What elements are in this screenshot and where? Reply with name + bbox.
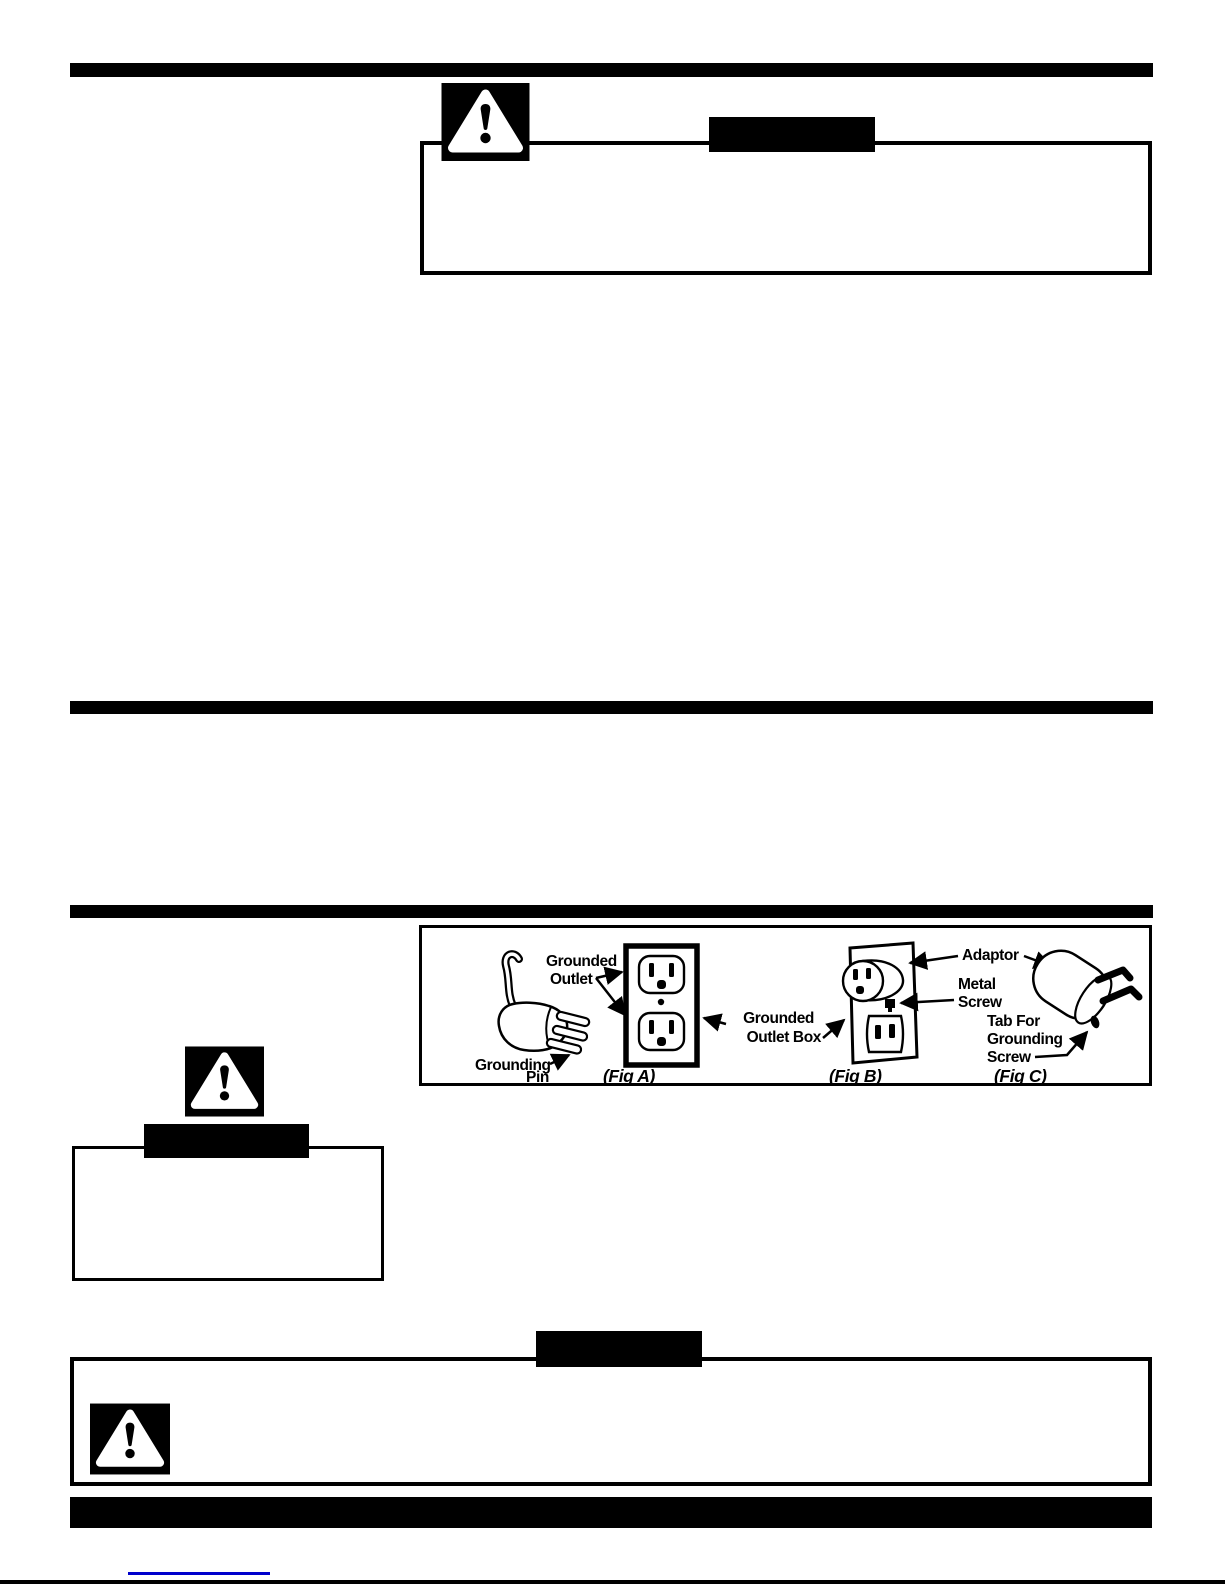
grounded-outlet-drawing: [626, 946, 697, 1065]
grounding-illustration: Grounded Outlet Grounding Pin Grounded O…: [422, 928, 1149, 1083]
warning-alert-icon: [90, 1399, 170, 1479]
caption-fig-a: (Fig A): [603, 1066, 656, 1083]
alert-triangle-icon: [185, 1046, 264, 1117]
warning-alert-icon: [441, 83, 530, 161]
section-rule-mid-1: [70, 701, 1153, 714]
grounding-figure: Grounded Outlet Grounding Pin Grounded O…: [419, 925, 1152, 1086]
notice-box: [72, 1146, 384, 1281]
label-outlet-box-line2: Outlet Box: [747, 1029, 822, 1046]
notice-box: [70, 1357, 1152, 1486]
section-rule-mid-2: [70, 905, 1153, 918]
label-metal-screw-line2: Screw: [958, 994, 1003, 1011]
label-grounded-outlet-line2: Outlet: [550, 971, 593, 988]
leader-arrow-outlet-bottom: [596, 978, 625, 1015]
label-grounding-pin-line2: Pin: [526, 1069, 549, 1083]
page-edge-rule: [0, 1580, 1225, 1584]
label-grounded-outlet-line1: Grounded: [546, 953, 617, 970]
leader-arrow-outlet-box-left: [704, 1018, 726, 1024]
warning-alert-icon: [185, 1046, 264, 1117]
leader-arrow-grounding-pin: [550, 1055, 569, 1064]
adaptor-plug-drawing: [1023, 940, 1139, 1029]
leader-arrow-adaptor-left: [910, 956, 958, 963]
notice-box: [420, 141, 1152, 275]
section-rule-top: [70, 63, 1153, 77]
label-tab-line1: Tab For: [987, 1013, 1040, 1030]
section-rule-bottom: [70, 1497, 1152, 1528]
caption-fig-b: (Fig B): [829, 1066, 882, 1083]
alert-triangle-icon: [90, 1399, 170, 1479]
label-tab-line3: Screw: [987, 1049, 1032, 1066]
footer-link-underline[interactable]: [128, 1572, 270, 1575]
signal-word-box: [144, 1124, 309, 1158]
label-tab-line2: Grounding: [987, 1031, 1063, 1048]
alert-triangle-icon: [441, 83, 530, 161]
signal-word-box: [709, 117, 875, 152]
caption-fig-c: (Fig C): [994, 1066, 1047, 1083]
label-outlet-box-line1: Grounded: [743, 1010, 814, 1027]
label-adaptor: Adaptor: [962, 947, 1019, 964]
leader-arrow-outlet-top: [596, 972, 622, 978]
leader-arrow-outlet-box-right: [823, 1020, 844, 1038]
signal-word-box: [536, 1331, 702, 1367]
label-metal-screw-line1: Metal: [958, 976, 996, 993]
manual-page: Grounded Outlet Grounding Pin Grounded O…: [0, 0, 1225, 1585]
